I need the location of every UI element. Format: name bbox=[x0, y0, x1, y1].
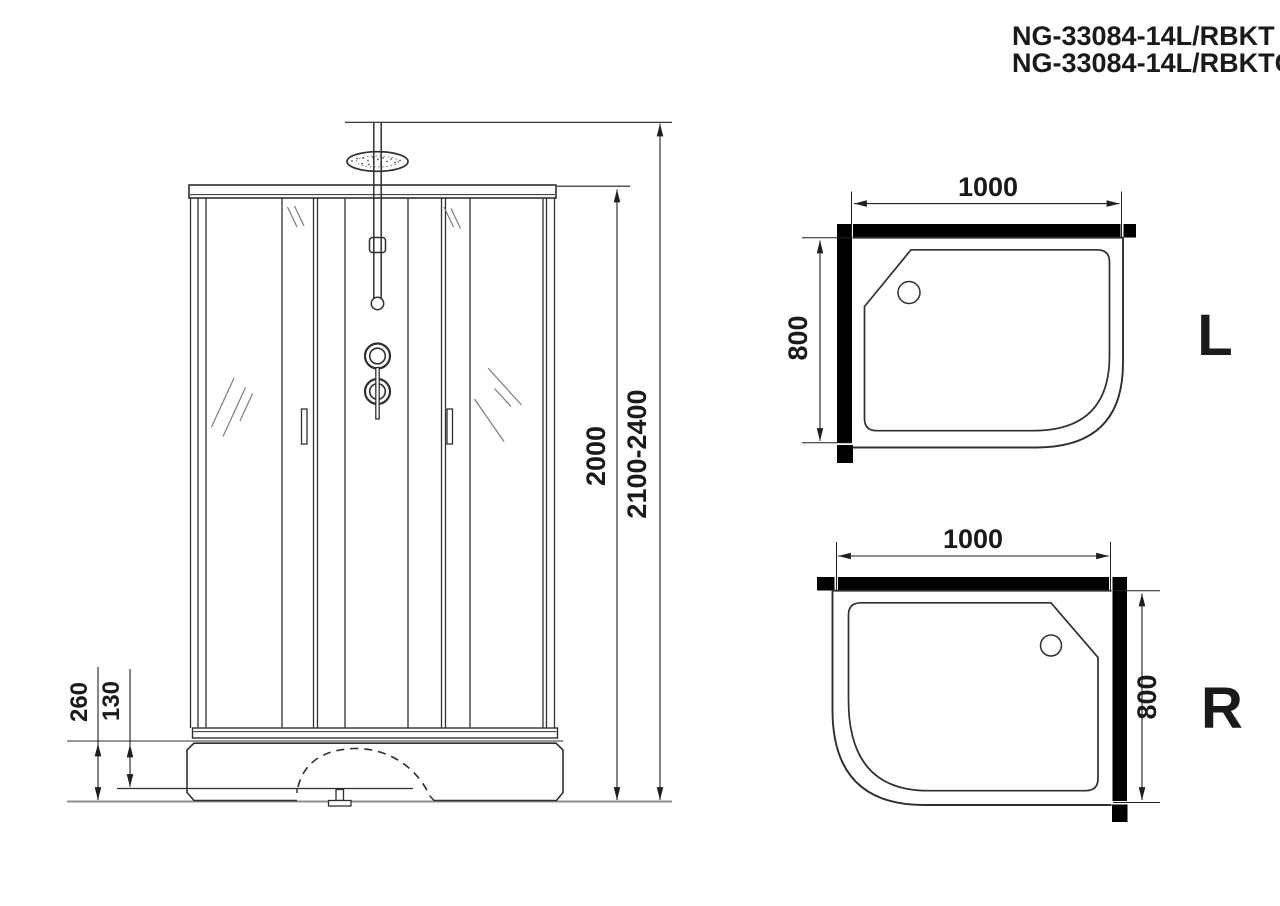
dim-width-l-label: 1000 bbox=[958, 172, 1018, 202]
glass-panels bbox=[191, 198, 555, 728]
dim-depth-r-label: 800 bbox=[1132, 674, 1162, 719]
model-number-line1: NG-33084-14L/RBKT bbox=[1012, 21, 1275, 51]
shower-column bbox=[370, 122, 386, 309]
top-view-r: 1000 800 R bbox=[817, 524, 1243, 822]
shower-tray bbox=[187, 743, 563, 806]
front-view: 2000 2100-2400 260 130 bbox=[66, 122, 672, 806]
faucet-lever bbox=[376, 368, 379, 420]
tray-outline bbox=[187, 743, 563, 800]
dim-width-l: 1000 bbox=[854, 172, 1120, 204]
dim-depth-r: 800 bbox=[1132, 594, 1162, 801]
wall-corner-cap-l bbox=[1124, 224, 1137, 238]
top-view-l: 1000 800 L bbox=[783, 172, 1233, 463]
upper-control-ring bbox=[365, 344, 390, 369]
diagram-page: NG-33084-14L/RBKT NG-33084-14L/RBKTG bbox=[0, 0, 1280, 906]
dim-depth-l-label: 800 bbox=[783, 315, 813, 360]
shower-cabin-technical-drawing: NG-33084-14L/RBKT NG-33084-14L/RBKTG bbox=[0, 0, 1280, 906]
faucet-controls bbox=[365, 344, 390, 420]
cabin-bottom-rail bbox=[193, 728, 558, 738]
glass-reflections bbox=[212, 206, 522, 442]
wall-foot-r bbox=[1112, 805, 1128, 823]
tray-cut-edges bbox=[297, 789, 434, 801]
dim-total-height: 2100-2400 bbox=[622, 124, 660, 801]
dim-tray-step: 130 bbox=[98, 669, 130, 787]
walls-l bbox=[837, 224, 1136, 463]
dim-tray-height-label: 260 bbox=[66, 682, 93, 722]
drain-l bbox=[898, 282, 920, 304]
pipe-end-cap bbox=[371, 297, 383, 309]
dim-cabin-height-label: 2000 bbox=[581, 426, 611, 486]
tray-foot bbox=[329, 790, 352, 807]
drain-r bbox=[1041, 635, 1062, 656]
dim-tray-height: 260 bbox=[66, 667, 98, 800]
shower-head bbox=[347, 152, 408, 172]
right-door-handle bbox=[447, 409, 453, 444]
variant-letter-l: L bbox=[1197, 303, 1232, 368]
tray-outer-l bbox=[853, 238, 1124, 448]
dim-width-r-label: 1000 bbox=[943, 524, 1003, 554]
dim-tray-step-label: 130 bbox=[98, 681, 125, 721]
model-number-line2: NG-33084-14L/RBKTG bbox=[1012, 48, 1280, 78]
tray-inner-l bbox=[865, 250, 1110, 431]
dim-width-r: 1000 bbox=[838, 524, 1109, 556]
wall-foot-l bbox=[837, 445, 853, 463]
cabin-top-bar bbox=[189, 185, 556, 198]
tray-inner-r bbox=[849, 603, 1099, 791]
model-title: NG-33084-14L/RBKT NG-33084-14L/RBKTG bbox=[1012, 21, 1280, 78]
shower-slider-bracket bbox=[370, 238, 386, 253]
dim-cabin-height: 2000 bbox=[581, 190, 617, 801]
walls-r bbox=[817, 577, 1128, 822]
variant-letter-r: R bbox=[1201, 676, 1243, 741]
dim-depth-l: 800 bbox=[783, 241, 820, 442]
left-door-handle bbox=[302, 409, 308, 444]
dim-total-height-label: 2100-2400 bbox=[622, 389, 652, 518]
